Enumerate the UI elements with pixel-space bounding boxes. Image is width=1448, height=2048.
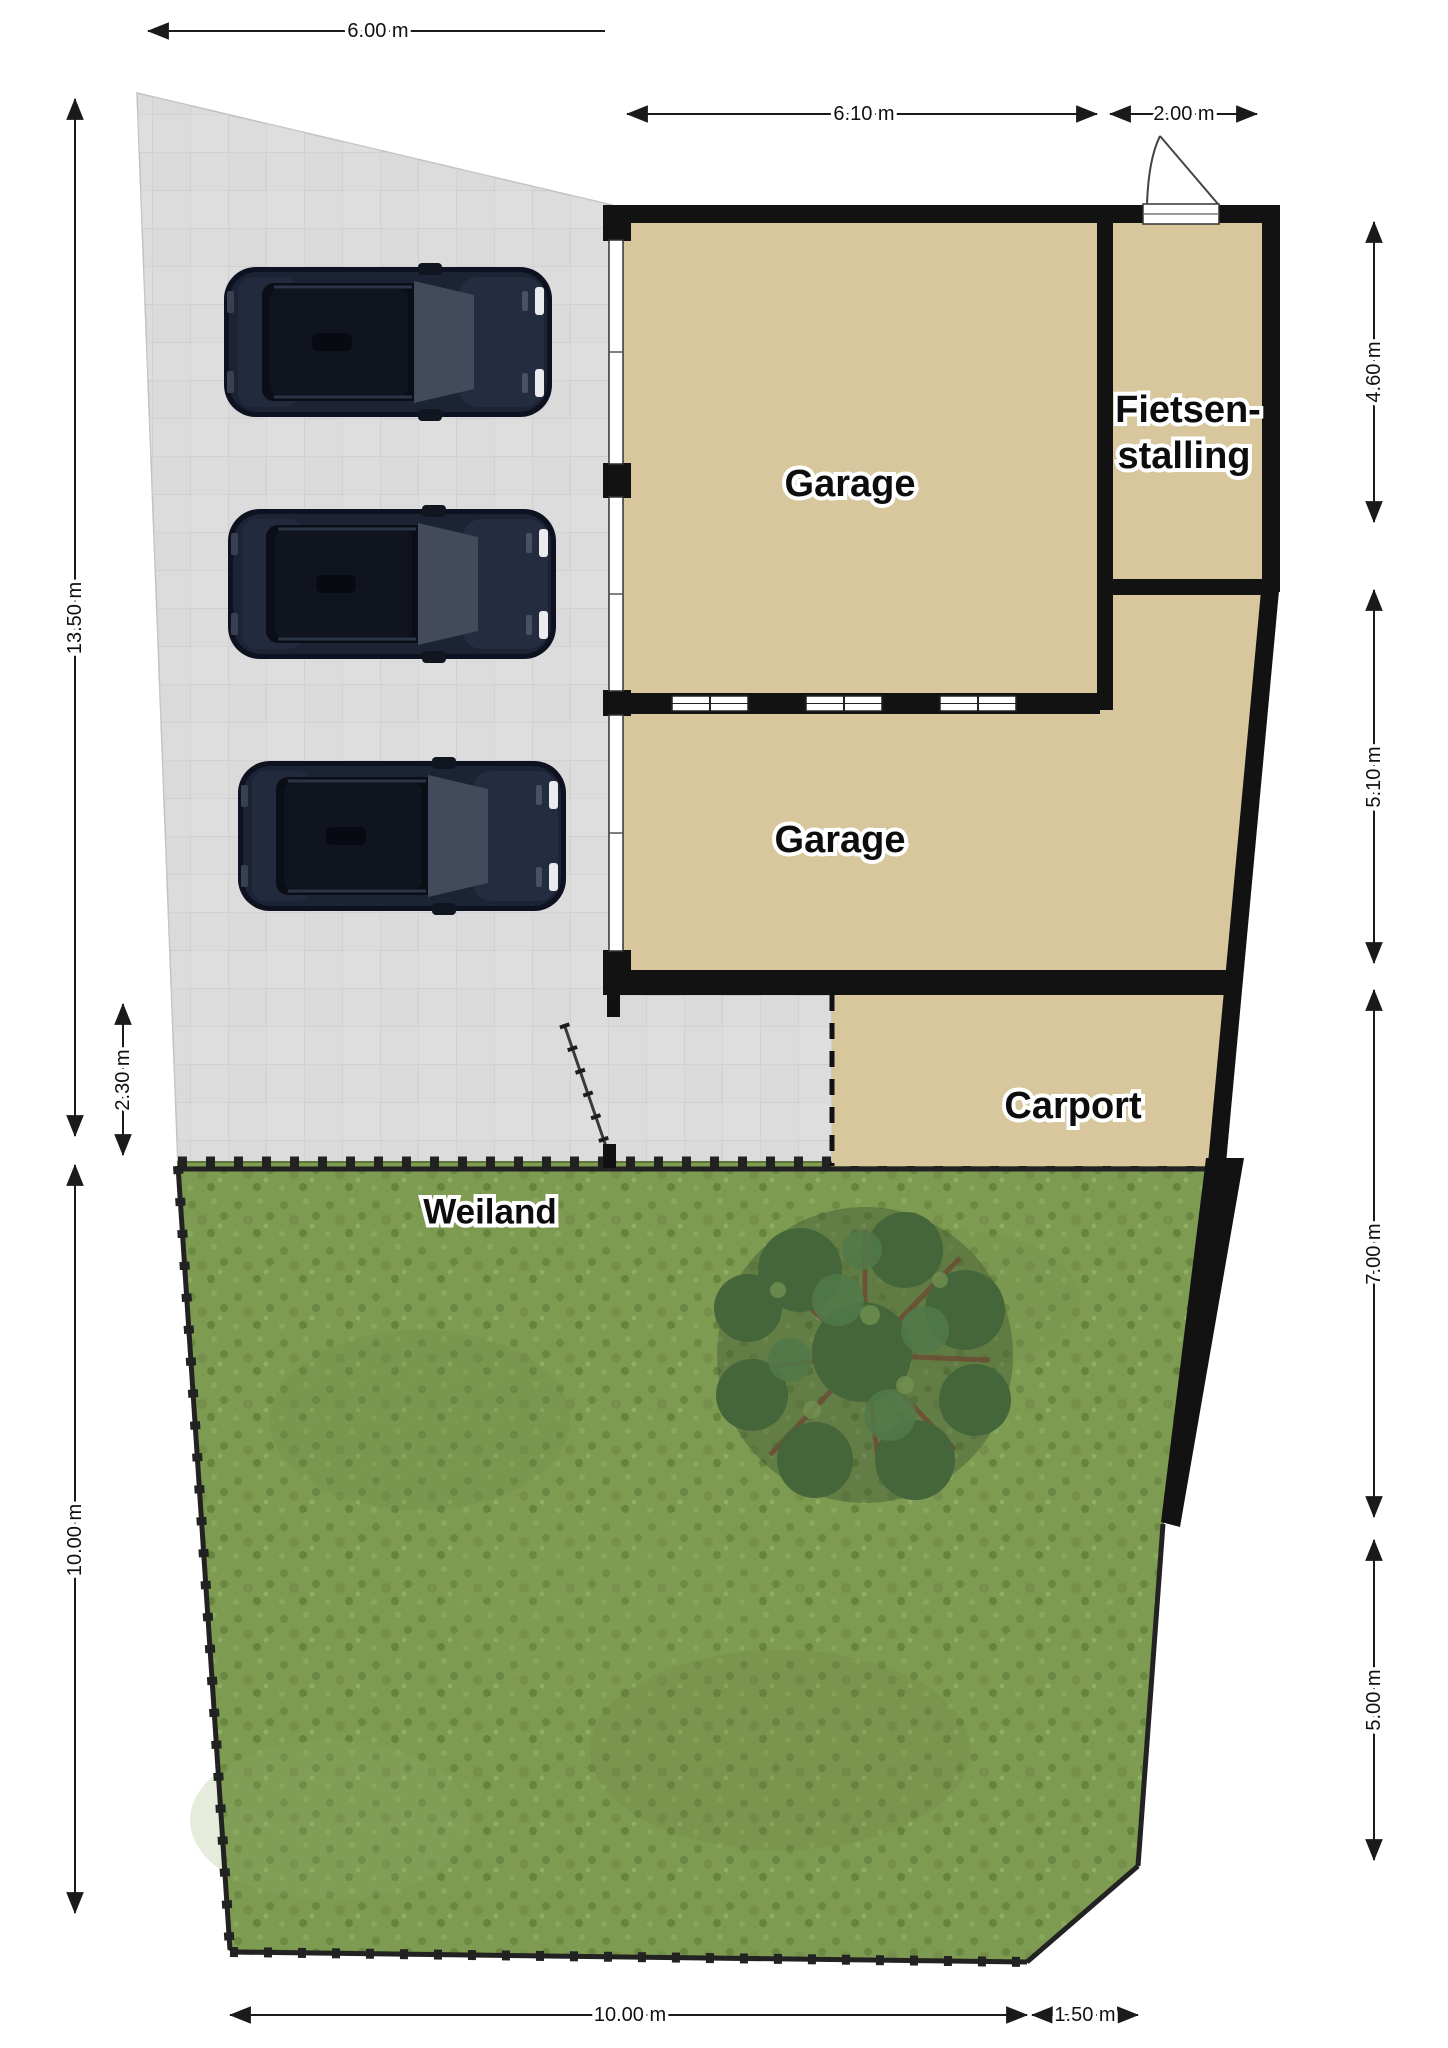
dim-left-strip: 2.30 m: [112, 1049, 134, 1110]
car: [228, 505, 556, 663]
car: [224, 263, 552, 421]
dim-right-fietsenstalling: 4.60 m: [1363, 341, 1385, 402]
dim-left-parking: 13.50 m: [64, 582, 86, 654]
parked-cars: [224, 263, 566, 915]
site-plan: Garage Fietsen- stalling Garage Carport …: [0, 0, 1448, 2048]
garage-door: [609, 715, 623, 951]
dim-bottom-weiland: 10.00 m: [594, 2004, 666, 2026]
weiland-meadow: [178, 1162, 1230, 1962]
dim-top-garage: 6.10 m: [833, 103, 894, 125]
dim-right-weiland: 5.00 m: [1363, 1669, 1385, 1730]
dim-left-weiland: 10.00 m: [64, 1504, 86, 1576]
dim-right-garage: 5.10 m: [1363, 746, 1385, 807]
garage-top-label: Garage: [785, 463, 916, 505]
garage-door: [609, 497, 623, 691]
dim-top-fietsenstalling: 2.00 m: [1153, 103, 1214, 125]
carport-label: Carport: [1004, 1085, 1142, 1127]
garage-door: [609, 240, 623, 464]
garage-middle-label: Garage: [775, 819, 906, 861]
fietsenstalling-door: [1143, 136, 1219, 224]
dim-right-carport: 7.00 m: [1363, 1223, 1385, 1284]
car: [238, 757, 566, 915]
window: [806, 696, 882, 711]
window: [940, 696, 1016, 711]
garage-doors: [609, 240, 623, 951]
garage-windows: [672, 696, 1016, 711]
window: [672, 696, 748, 711]
carport-floor: [832, 990, 1225, 1166]
fietsenstalling-label-line1: Fietsen-: [1115, 389, 1261, 431]
weiland-label: Weiland: [423, 1193, 557, 1232]
floorplan-page: Garage Fietsen- stalling Garage Carport …: [0, 0, 1448, 2048]
dim-bottom-corner: 1.50 m: [1054, 2004, 1115, 2026]
fietsenstalling-label-line2: stalling: [1117, 435, 1250, 477]
dim-top-parking: 6.00 m: [347, 20, 408, 42]
